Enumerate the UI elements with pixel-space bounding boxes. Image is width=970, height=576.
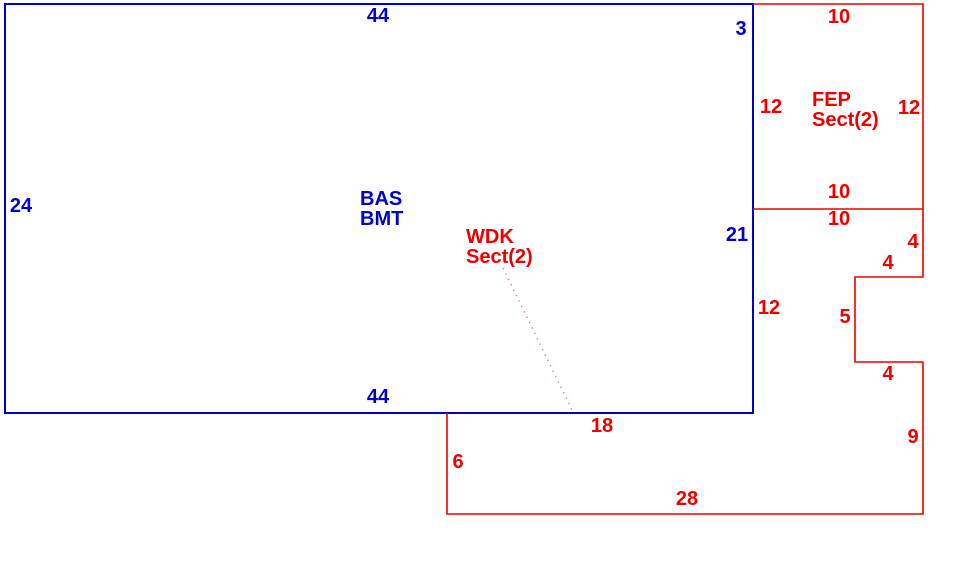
wdk-dim-left: 6 <box>452 452 463 472</box>
wdk-area-label-line2: Sect(2) <box>466 247 533 267</box>
bas-dim-right-upper: 3 <box>735 19 746 39</box>
wdk-dim-shared-right: 12 <box>758 298 780 318</box>
fep-dim-left: 12 <box>760 97 782 117</box>
bas-area-label: BAS BMT <box>360 189 403 229</box>
bas-area-label-line2: BMT <box>360 209 403 229</box>
bas-dim-top: 44 <box>367 6 389 26</box>
bas-dim-bottom: 44 <box>367 387 389 407</box>
wdk-dim-shared-bottom: 18 <box>591 416 613 436</box>
wdk-dim-top: 10 <box>828 209 850 229</box>
wdk-area-label-line1: WDK <box>466 227 533 247</box>
sketch-drawing <box>0 0 970 576</box>
wdk-dim-bottom: 28 <box>676 489 698 509</box>
bas-dim-left: 24 <box>10 196 32 216</box>
wdk-leader-line <box>503 268 572 410</box>
fep-area-label-line1: FEP <box>812 90 879 110</box>
wdk-dim-notch-top: 4 <box>882 253 893 273</box>
fep-dim-bottom: 10 <box>828 182 850 202</box>
fep-area-label: FEP Sect(2) <box>812 90 879 130</box>
wdk-dim-notch-left: 5 <box>839 307 850 327</box>
bas-area-label-line1: BAS <box>360 189 403 209</box>
bas-dim-right-lower: 21 <box>726 225 748 245</box>
fep-area-label-line2: Sect(2) <box>812 110 879 130</box>
fep-dim-top: 10 <box>828 7 850 27</box>
wdk-dim-right-lower: 9 <box>907 427 918 447</box>
sketch-canvas: 44 3 24 21 44 BAS BMT 10 12 12 10 FEP Se… <box>0 0 970 576</box>
wdk-area-label: WDK Sect(2) <box>466 227 533 267</box>
wdk-dim-notch-bottom: 4 <box>882 364 893 384</box>
fep-dim-right: 12 <box>898 98 920 118</box>
wdk-dim-right-upper: 4 <box>907 232 918 252</box>
